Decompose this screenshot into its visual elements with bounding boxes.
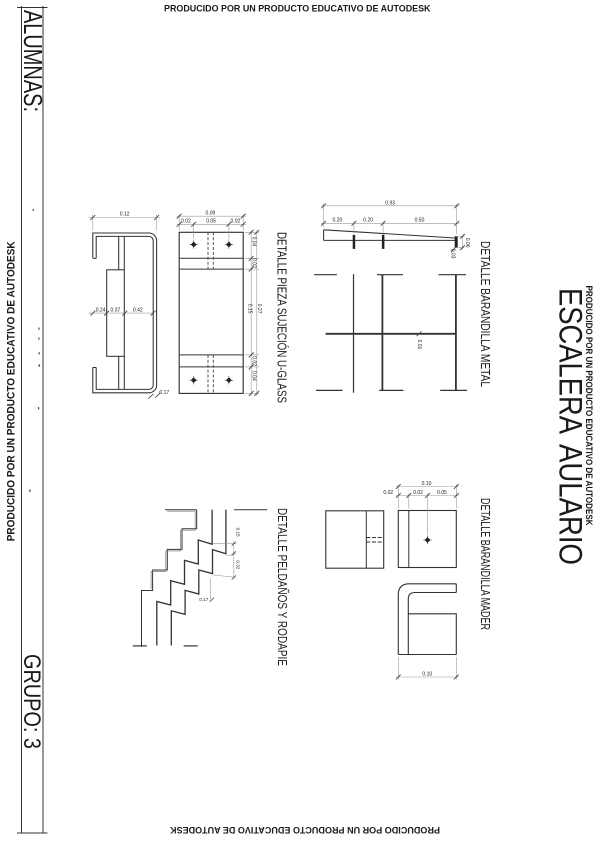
svg-text:0.50: 0.50 <box>415 218 425 224</box>
svg-text:0.04: 0.04 <box>250 237 256 247</box>
svg-text:0.42: 0.42 <box>133 307 143 313</box>
svg-text:0.15: 0.15 <box>236 528 241 537</box>
svg-text:ESCALERA: ESCALERA <box>553 288 589 435</box>
svg-text:0.02: 0.02 <box>181 219 191 225</box>
svg-text:0.15: 0.15 <box>246 304 252 314</box>
svg-text:0.02: 0.02 <box>231 219 241 225</box>
svg-text:0.17: 0.17 <box>199 597 208 602</box>
svg-text:0.37: 0.37 <box>111 307 121 313</box>
svg-text:DETALLE BARANDILLA METAL: DETALLE BARANDILLA METAL <box>478 241 493 387</box>
svg-text:0.93: 0.93 <box>385 200 395 206</box>
svg-text:DETALLE BARANDILLA MADER: DETALLE BARANDILLA MADER <box>478 498 493 630</box>
svg-text:0.05: 0.05 <box>206 219 216 225</box>
svg-text:0.04: 0.04 <box>250 371 256 381</box>
svg-text:PRODUCIDO POR UN PRODUCTO EDUC: PRODUCIDO POR UN PRODUCTO EDUCATIVO DE A… <box>164 4 431 14</box>
svg-text:ALUMNAS:: ALUMNAS: <box>18 10 48 112</box>
svg-text:0.10: 0.10 <box>422 671 432 677</box>
svg-text:0.01: 0.01 <box>416 340 422 350</box>
svg-text:0.24: 0.24 <box>96 307 106 313</box>
svg-text:0.20: 0.20 <box>333 218 343 224</box>
svg-text:DETALLE PELDAÑOS Y RODAPIE: DETALLE PELDAÑOS Y RODAPIE <box>275 508 290 666</box>
svg-text:PRODUCIDO POR UN PRODUCTO EDUC: PRODUCIDO POR UN PRODUCTO EDUCATIVO DE A… <box>6 241 18 541</box>
svg-text:0.02: 0.02 <box>250 258 256 268</box>
svg-text:PRODUCIDO POR UN PRODUCTO EDUC: PRODUCIDO POR UN PRODUCTO EDUCATIVO DE A… <box>170 824 440 835</box>
svg-text:GRUPO: 3: GRUPO: 3 <box>18 654 45 749</box>
svg-text:0.02: 0.02 <box>250 356 256 366</box>
svg-text:DETALLE PIEZA SUJECIÓN U-GLASS: DETALLE PIEZA SUJECIÓN U-GLASS <box>275 232 290 403</box>
svg-text:0.06: 0.06 <box>464 238 470 248</box>
svg-text:0.02: 0.02 <box>413 490 423 496</box>
svg-text:AULARIO: AULARIO <box>553 444 589 565</box>
svg-text:0.17: 0.17 <box>159 390 169 396</box>
svg-text:0.03: 0.03 <box>449 249 455 259</box>
svg-text:0.09: 0.09 <box>206 211 216 217</box>
svg-text:0.12: 0.12 <box>120 212 130 218</box>
svg-text:0.27: 0.27 <box>256 304 262 314</box>
svg-text:0.10: 0.10 <box>422 481 432 487</box>
svg-text:0.20: 0.20 <box>363 218 373 224</box>
svg-text:0.05: 0.05 <box>437 490 447 496</box>
svg-text:0.02: 0.02 <box>383 490 393 496</box>
svg-text:0.32: 0.32 <box>236 560 241 569</box>
